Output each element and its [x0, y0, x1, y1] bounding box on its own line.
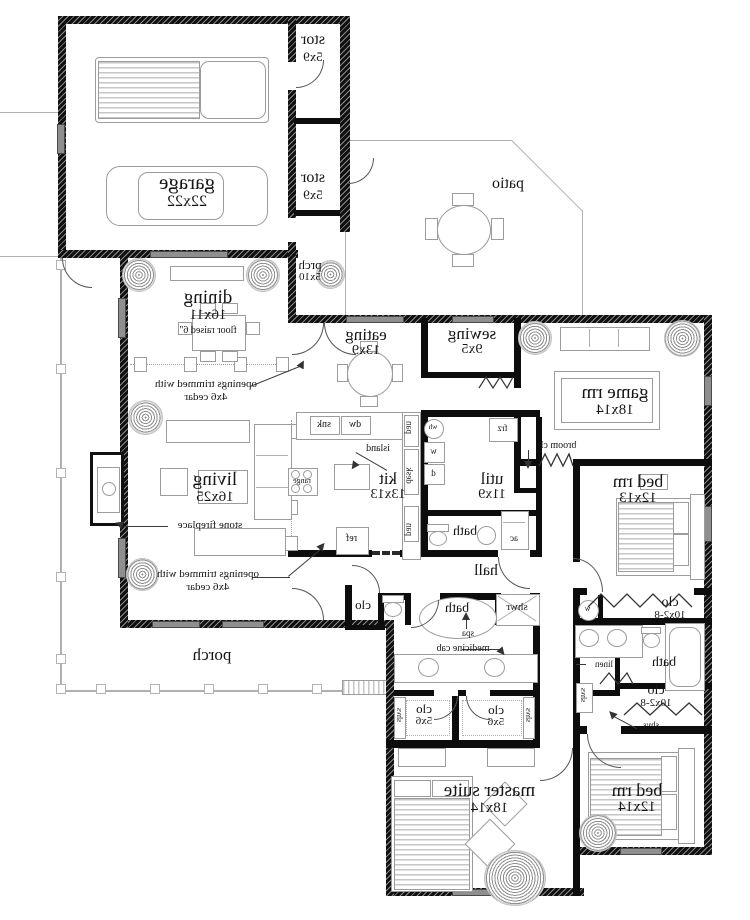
room-label-hall-clo: clo	[343, 598, 383, 611]
chair	[452, 193, 474, 206]
room-label-stor1: stor	[289, 32, 337, 48]
fixture-label-frz: frz	[489, 424, 516, 433]
truck-bed	[98, 61, 200, 119]
room-label-right-bath: bath	[636, 656, 692, 670]
fixture-label-desk: desk	[405, 461, 414, 491]
room-label-dining: dining	[168, 288, 248, 307]
bedspread	[618, 502, 674, 572]
porch-post	[56, 468, 66, 478]
fireplace-flue	[102, 482, 116, 496]
fixture-label-d: d	[424, 469, 443, 478]
burner	[303, 484, 312, 493]
arrowhead	[524, 461, 532, 469]
wall	[294, 118, 340, 124]
room-dims-clo-tall-2: 10x2-8	[626, 698, 686, 709]
porch-post	[150, 684, 160, 694]
room-dims-bed-rm-1: 12x13	[592, 491, 684, 506]
wall	[458, 690, 466, 696]
window	[704, 506, 712, 542]
sofa-cushion-line	[589, 329, 590, 347]
shrub	[484, 850, 546, 906]
room-dims-bed-rm-2: 12x14	[591, 800, 683, 815]
window	[150, 251, 228, 258]
shrub	[579, 814, 617, 852]
room-dims-sewing: 9x5	[430, 343, 514, 357]
room-dims-dining: 16x11	[168, 308, 248, 323]
chair	[452, 254, 474, 267]
patio-edge-top	[348, 140, 512, 141]
door-arc	[292, 323, 324, 355]
room-label-sewing: sewing	[430, 325, 514, 342]
room-label-prch: prch	[292, 258, 328, 271]
door-arc	[352, 565, 380, 593]
room-dims-living: 16x25	[179, 490, 251, 505]
room-dims-clo-small-1: 5x6	[398, 716, 450, 727]
wall	[421, 318, 428, 378]
room-label-hall-bath: bath	[439, 525, 491, 539]
wall	[421, 550, 498, 557]
wall	[573, 459, 712, 466]
fixture-label-pan-1: pan	[405, 413, 414, 443]
chair	[337, 364, 348, 382]
room-dims-game-rm: 18x14	[563, 403, 667, 418]
sofa	[194, 528, 286, 556]
room-label-clo-small-1: clo	[398, 702, 450, 715]
window	[704, 376, 712, 406]
room-label-patio: patio	[482, 176, 534, 192]
exterior-wall	[340, 16, 350, 232]
chair	[200, 351, 216, 362]
annotation-openings-1a: openings trimmed with	[132, 379, 280, 390]
room-label-clo-small-2: clo	[468, 703, 524, 716]
door-arc	[573, 558, 603, 592]
truck-cab	[200, 61, 266, 119]
accordion-door	[538, 452, 574, 468]
room-dims-util: 11x9	[466, 488, 518, 502]
room-label-living: living	[179, 470, 251, 489]
shrub	[518, 321, 552, 355]
room-label-bed-rm-2: bed rm	[591, 781, 683, 799]
room-dims-clo-small-2: 5x6	[468, 717, 524, 728]
sofa	[560, 327, 650, 351]
wall	[573, 740, 580, 748]
room-dims-prch: 5x10	[292, 272, 328, 283]
room-note-dining: floor raised 6"	[160, 326, 256, 336]
annotation-openings-2b: 4x6 cedar	[134, 582, 282, 593]
door-arc	[348, 158, 374, 184]
window	[152, 621, 200, 628]
fixture-label-ref: ref	[336, 534, 367, 544]
room-label-game-rm: game rm	[563, 383, 667, 402]
fixture-label-snk: snk	[310, 420, 338, 430]
fixture-label-range: range	[287, 477, 317, 485]
annotation-shvs-2: shvs	[524, 700, 532, 730]
door-arc	[296, 60, 324, 88]
wall	[536, 417, 542, 557]
room-label-master-bath: bath	[431, 602, 483, 616]
room-dims-garage: 22x22	[137, 194, 237, 210]
sofa-cushion-line	[256, 487, 288, 488]
wall	[421, 410, 540, 417]
window	[118, 298, 126, 338]
sofa	[254, 424, 292, 520]
cedar-column	[134, 357, 147, 372]
room-dims-stor2: 5x9	[289, 188, 337, 201]
annotation-fireplace: stone fireplace	[168, 520, 252, 531]
fixture-label-w2: w	[578, 605, 597, 613]
window	[346, 316, 404, 323]
sink	[484, 658, 505, 677]
vanity	[394, 654, 538, 683]
exterior-wall	[58, 16, 350, 24]
fixture-label-dw: dw	[341, 420, 369, 430]
sofa	[166, 420, 250, 443]
room-dims-master: 18x14	[417, 801, 562, 816]
room-label-shwr: shwr	[496, 602, 538, 613]
shrub	[128, 400, 163, 435]
window	[620, 848, 662, 855]
chair	[360, 396, 378, 407]
porch-post	[56, 654, 66, 664]
fixture-label-ac: ac	[501, 534, 527, 543]
annotation-broom-clo: broom clo	[521, 441, 591, 451]
burner	[291, 484, 300, 493]
porch-post	[56, 364, 66, 374]
annotation-medicine-cab: medicine cab	[420, 644, 506, 654]
wall	[573, 726, 580, 896]
porch-post	[56, 572, 66, 582]
porch-steps	[342, 680, 390, 695]
driveway-line	[0, 256, 58, 257]
room-dims-eating: 13x9	[330, 344, 402, 358]
wall	[345, 625, 385, 630]
chair	[222, 351, 238, 362]
cedar-column	[285, 536, 298, 551]
chair	[392, 364, 403, 382]
wall	[294, 210, 340, 216]
shrub	[246, 258, 280, 292]
room-label-hall: hall	[460, 563, 512, 579]
pillow	[673, 502, 689, 534]
arrowhead	[297, 359, 308, 370]
fixture-label-w: w	[424, 447, 443, 456]
room-label-util: util	[466, 470, 518, 487]
fixture-label-wh: wh	[424, 424, 442, 431]
porch-post	[258, 684, 268, 694]
room-dims-stor1: 5x9	[289, 50, 337, 63]
shrub	[664, 320, 701, 357]
chair	[425, 218, 438, 240]
wall	[694, 588, 712, 595]
buffet	[170, 266, 244, 281]
patio-table	[437, 205, 491, 255]
room-label-bed-rm-1: bed rm	[592, 472, 684, 490]
annotation-openings-1b: 4x6 cedar	[132, 392, 280, 403]
driveway-line	[0, 112, 58, 113]
annotation-shvs-1: shvs	[395, 700, 403, 730]
ac-unit	[501, 511, 529, 550]
porch-post	[96, 684, 106, 694]
sink	[607, 629, 627, 647]
window	[118, 538, 126, 578]
headboard	[690, 494, 705, 580]
wall	[530, 550, 540, 557]
cased-opening-dashed	[372, 551, 400, 555]
porch-post	[312, 684, 322, 694]
chair	[491, 218, 504, 240]
pillow	[673, 534, 689, 566]
window	[222, 621, 264, 628]
porch-post	[56, 684, 66, 694]
annotation-linen: linen	[584, 660, 624, 669]
room-dims-clo-tall-1: 10x2-8	[640, 610, 700, 621]
wall	[386, 740, 540, 748]
door-arc	[292, 588, 324, 620]
wall	[490, 690, 540, 696]
patio-edge-right	[582, 210, 583, 316]
cedar-column	[184, 357, 197, 372]
room-label-eating: eating	[330, 326, 402, 343]
wall	[573, 466, 580, 562]
toilet-bowl	[643, 633, 660, 648]
toilet-bowl	[384, 602, 402, 617]
porch-post	[204, 684, 214, 694]
window	[57, 124, 65, 154]
porch-edge-bottom	[60, 690, 390, 692]
cased-opening-line	[130, 364, 288, 365]
window	[452, 316, 494, 323]
sink	[418, 658, 439, 677]
annotation-island: island	[354, 444, 402, 454]
annotation-spa: spa	[452, 629, 484, 638]
wall	[394, 690, 434, 696]
annotation-openings-2a: openings trimmed with	[134, 569, 282, 580]
dresser	[398, 748, 446, 767]
room-label-porch: porch	[176, 646, 248, 663]
room-label-garage: garage	[137, 172, 237, 193]
fixture-label-pan-2: pan	[405, 515, 414, 545]
annotation-shvs-arrow: shvs	[633, 721, 669, 730]
sofa-cushion-line	[618, 329, 619, 347]
door-arc	[540, 748, 573, 781]
bifold-door	[478, 374, 514, 390]
annotation-shvs-3: shvs	[579, 680, 587, 710]
shrub	[122, 258, 156, 292]
floor-plan: stor 5x9 garage 22x22 stor 5x9 patio prc…	[0, 0, 750, 920]
dresser	[487, 748, 535, 767]
room-label-stor2: stor	[289, 170, 337, 186]
door-arc	[62, 258, 92, 288]
sofa-cushion-line	[256, 455, 288, 456]
leader-line	[124, 526, 168, 527]
ac-unit-line	[503, 522, 525, 523]
sink	[579, 629, 599, 647]
room-label-master: master suite	[417, 781, 562, 800]
